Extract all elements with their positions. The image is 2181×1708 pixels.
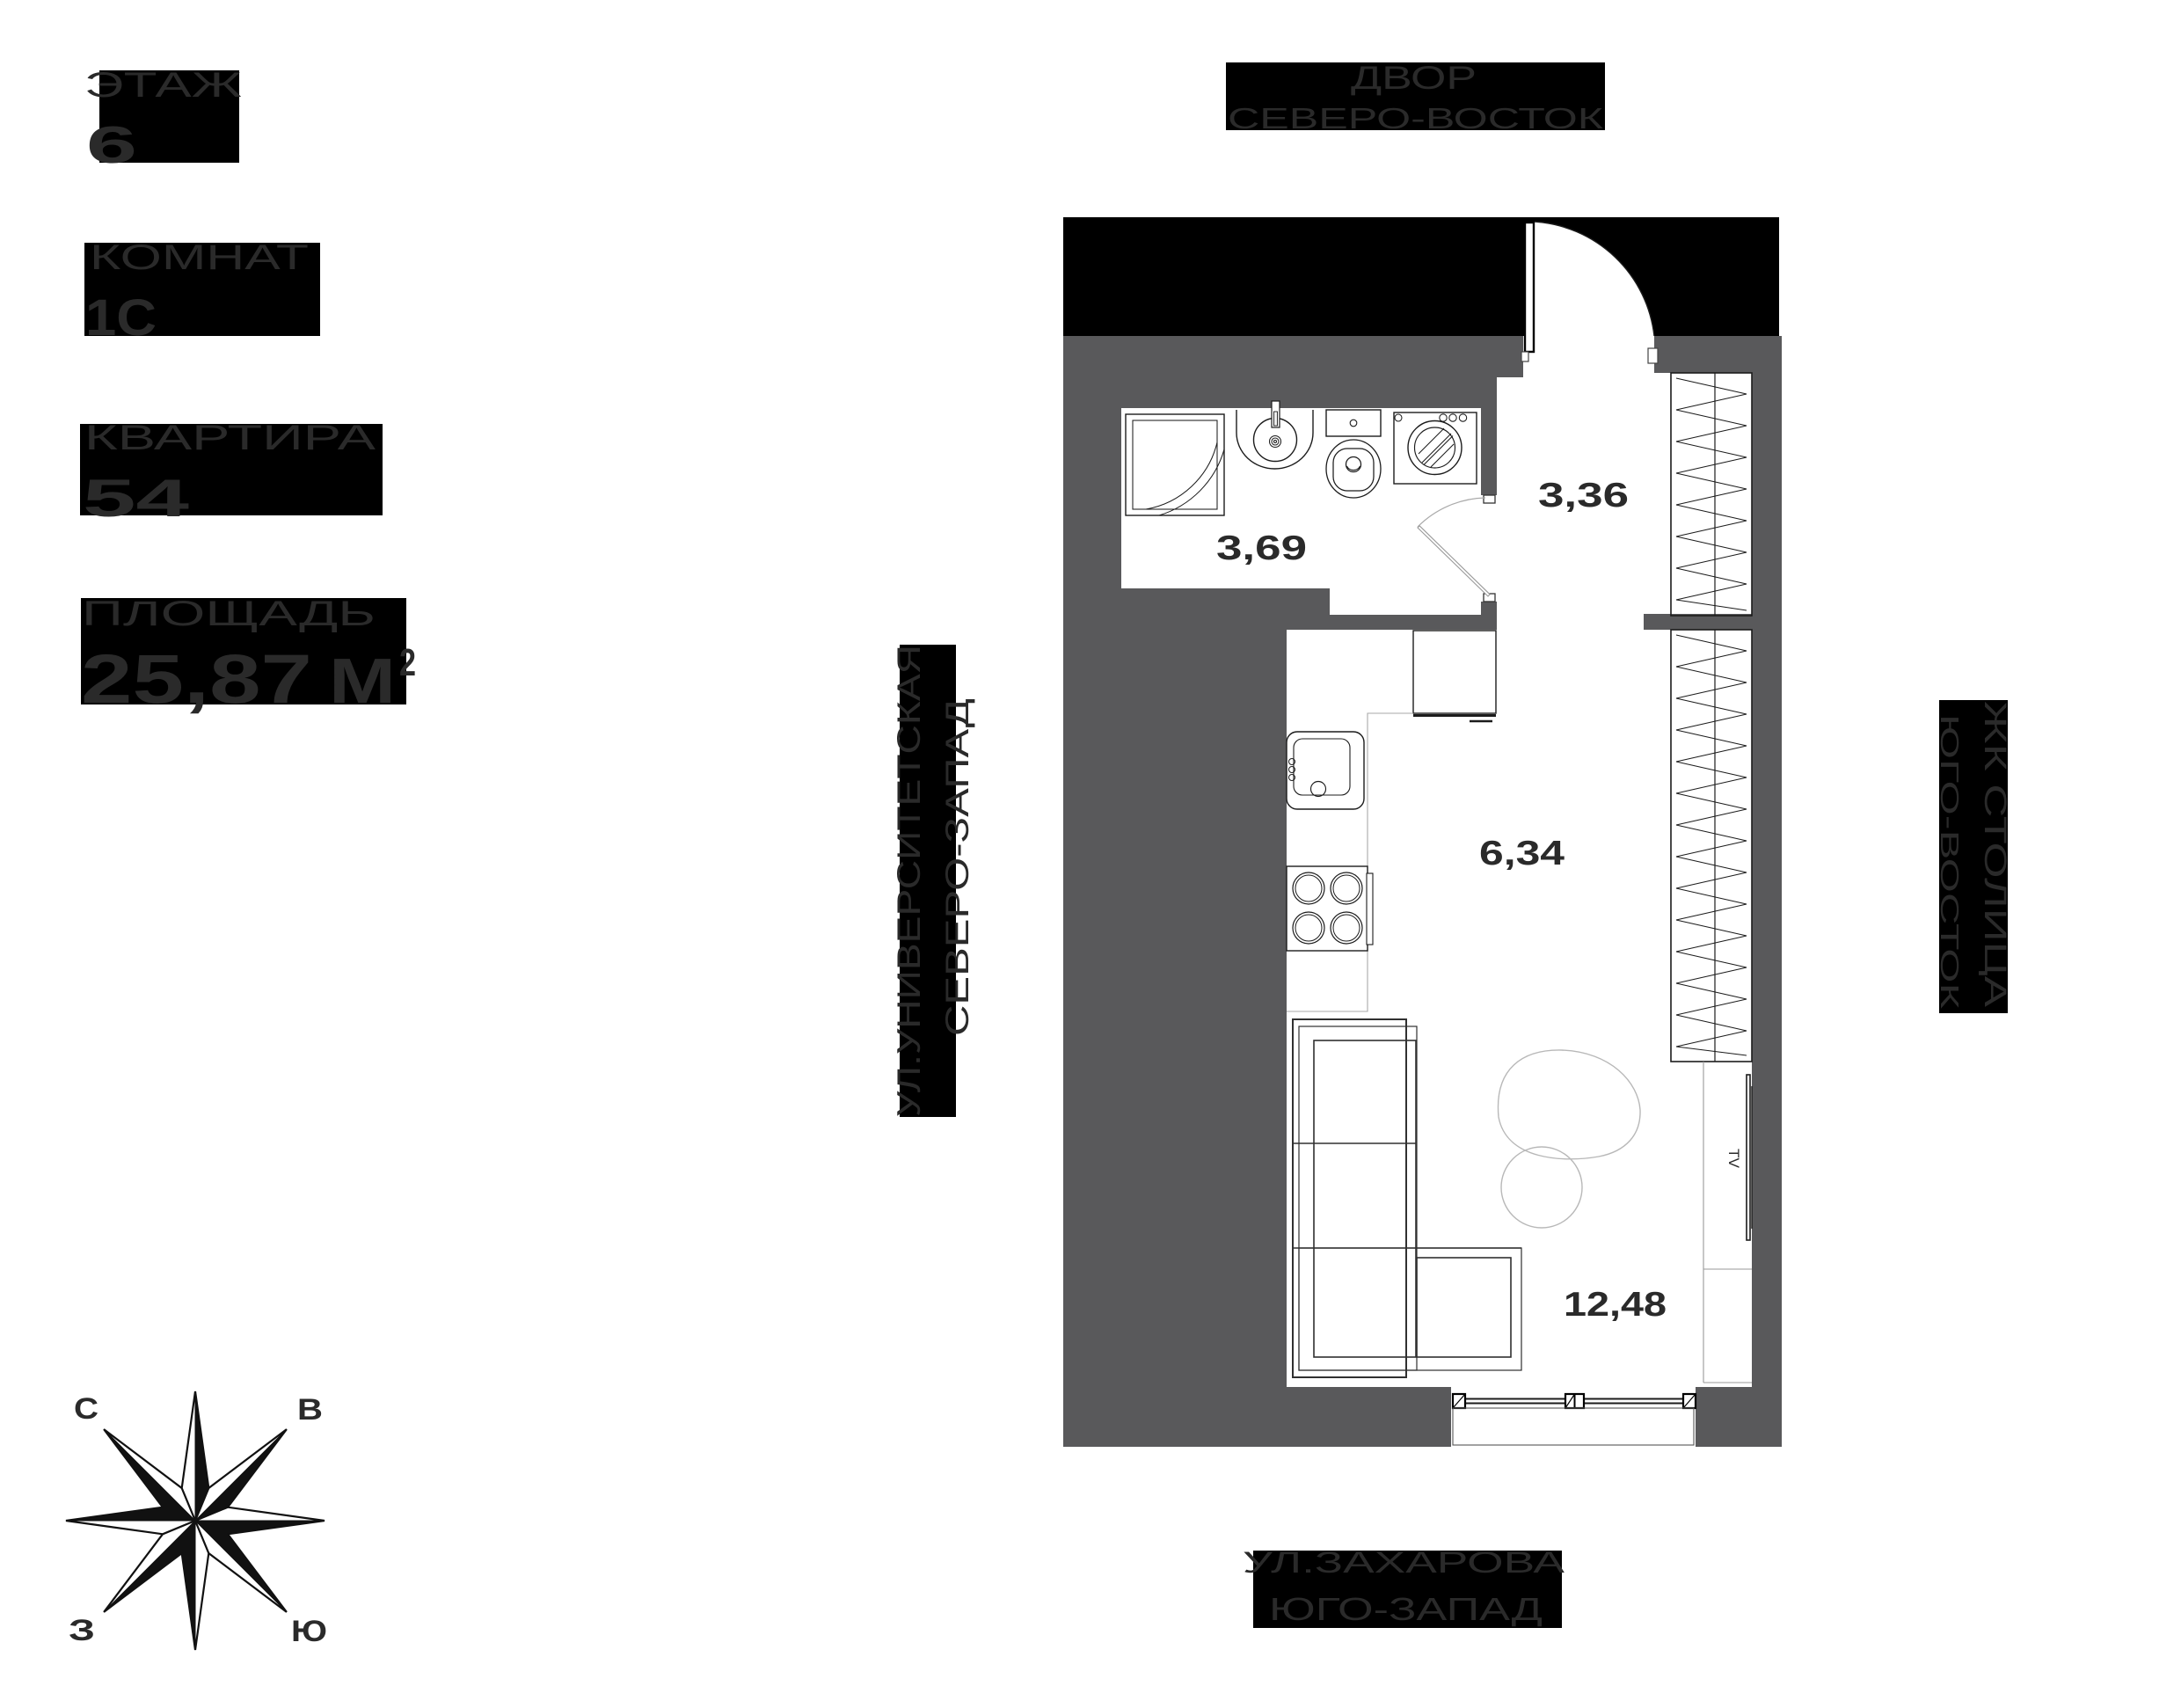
svg-text:ДВОР: ДВОР <box>1351 60 1477 96</box>
svg-text:12,48: 12,48 <box>1564 1286 1667 1324</box>
svg-text:3,36: 3,36 <box>1538 477 1629 515</box>
svg-text:Ю: Ю <box>291 1615 327 1648</box>
svg-text:КВАРТИРА: КВАРТИРА <box>84 419 376 457</box>
svg-text:СЕВЕРО-ВОСТОК: СЕВЕРО-ВОСТОК <box>1228 102 1604 135</box>
svg-text:ПЛОЩАДЬ: ПЛОЩАДЬ <box>82 595 376 633</box>
svg-text:25,87: 25,87 <box>81 639 312 718</box>
svg-text:54: 54 <box>83 469 190 528</box>
svg-text:2: 2 <box>399 641 416 684</box>
svg-text:ЭТАЖ: ЭТАЖ <box>84 66 242 105</box>
svg-text:КОМНАТ: КОМНАТ <box>90 238 309 277</box>
svg-text:ЮГО-ЗАПАД: ЮГО-ЗАПАД <box>1269 1591 1543 1627</box>
svg-text:УЛ.УНИВЕРСИТЕТСКАЯ: УЛ.УНИВЕРСИТЕТСКАЯ <box>891 645 927 1117</box>
svg-text:С: С <box>74 1392 98 1426</box>
svg-text:В: В <box>297 1393 323 1427</box>
svg-text:З: З <box>69 1614 95 1647</box>
svg-text:6: 6 <box>86 116 137 174</box>
svg-text:TV: TV <box>1725 1149 1742 1169</box>
svg-text:ЮГО-ВОСТОК: ЮГО-ВОСТОК <box>1935 714 1963 1009</box>
svg-text:М: М <box>329 646 396 717</box>
svg-text:3,69: 3,69 <box>1216 529 1307 567</box>
svg-text:СЕВЕРО-ЗАПАД: СЕВЕРО-ЗАПАД <box>939 698 975 1036</box>
svg-text:6,34: 6,34 <box>1479 835 1565 872</box>
svg-text:ЖК СТОЛИЦА: ЖК СТОЛИЦА <box>1978 701 2012 1008</box>
svg-text:1С: 1С <box>85 289 157 347</box>
svg-text:УЛ.ЗАХАРОВА: УЛ.ЗАХАРОВА <box>1243 1546 1565 1580</box>
